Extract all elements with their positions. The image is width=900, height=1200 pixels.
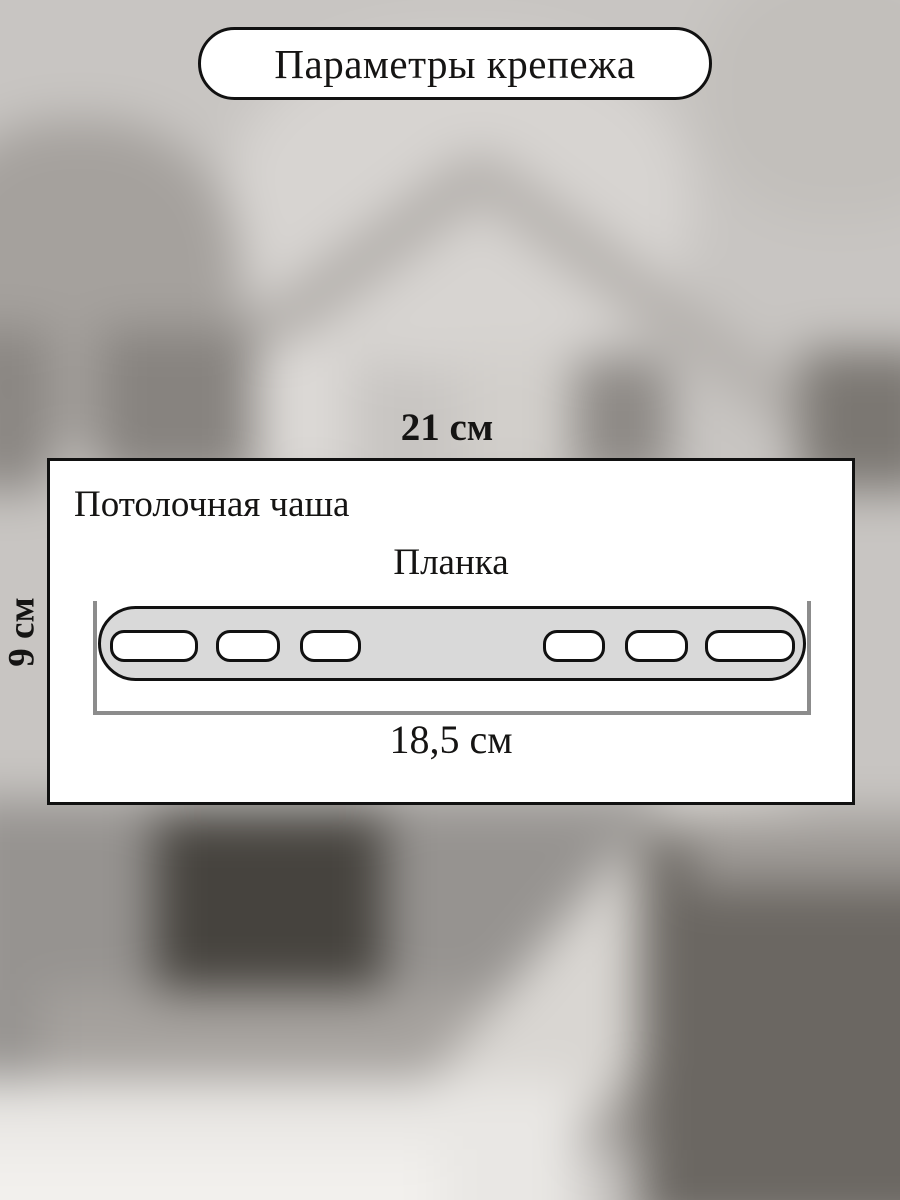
strip-slot: [110, 630, 198, 662]
bg-wall-dark-left-edge: [0, 330, 50, 490]
bg-furniture-top-edge: [690, 815, 900, 885]
product-infographic: Параметры крепежа 21 см 9 см Потолочная …: [0, 0, 900, 1200]
ceiling-cup-label: Потолочная чаша: [74, 483, 349, 526]
diagram-panel: Потолочная чаша Планка 18,5 см: [47, 458, 855, 805]
strip-label: Планка: [50, 541, 852, 584]
mounting-strip: [98, 606, 806, 681]
title-badge: Параметры крепежа: [198, 27, 712, 100]
height-dimension-label: 9 см: [1, 597, 44, 666]
strip-width-dimension-label: 18,5 см: [50, 716, 852, 763]
strip-slot: [625, 630, 688, 662]
bg-furniture-dark-right: [640, 830, 900, 1200]
strip-slot: [705, 630, 795, 662]
bg-floor-white: [0, 1150, 440, 1200]
strip-slot: [300, 630, 361, 662]
strip-slot: [543, 630, 605, 662]
width-dimension-label: 21 см: [401, 405, 494, 450]
strip-slot: [216, 630, 280, 662]
title-text: Параметры крепежа: [274, 40, 635, 88]
